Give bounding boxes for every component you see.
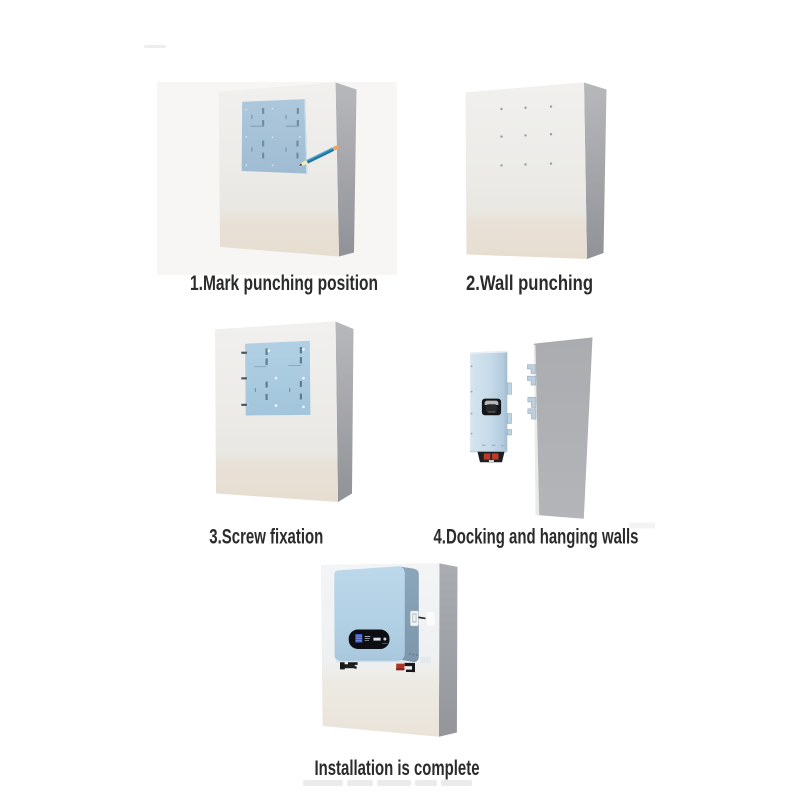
- svg-text:2.Wall punching: 2.Wall punching: [466, 272, 593, 295]
- svg-text:4.Docking and hanging walls: 4.Docking and hanging walls: [434, 526, 639, 549]
- svg-text:3.Screw fixation: 3.Screw fixation: [209, 526, 323, 549]
- svg-text:Installation is complete: Installation is complete: [315, 756, 480, 780]
- svg-text:1.Mark punching position: 1.Mark punching position: [190, 272, 378, 295]
